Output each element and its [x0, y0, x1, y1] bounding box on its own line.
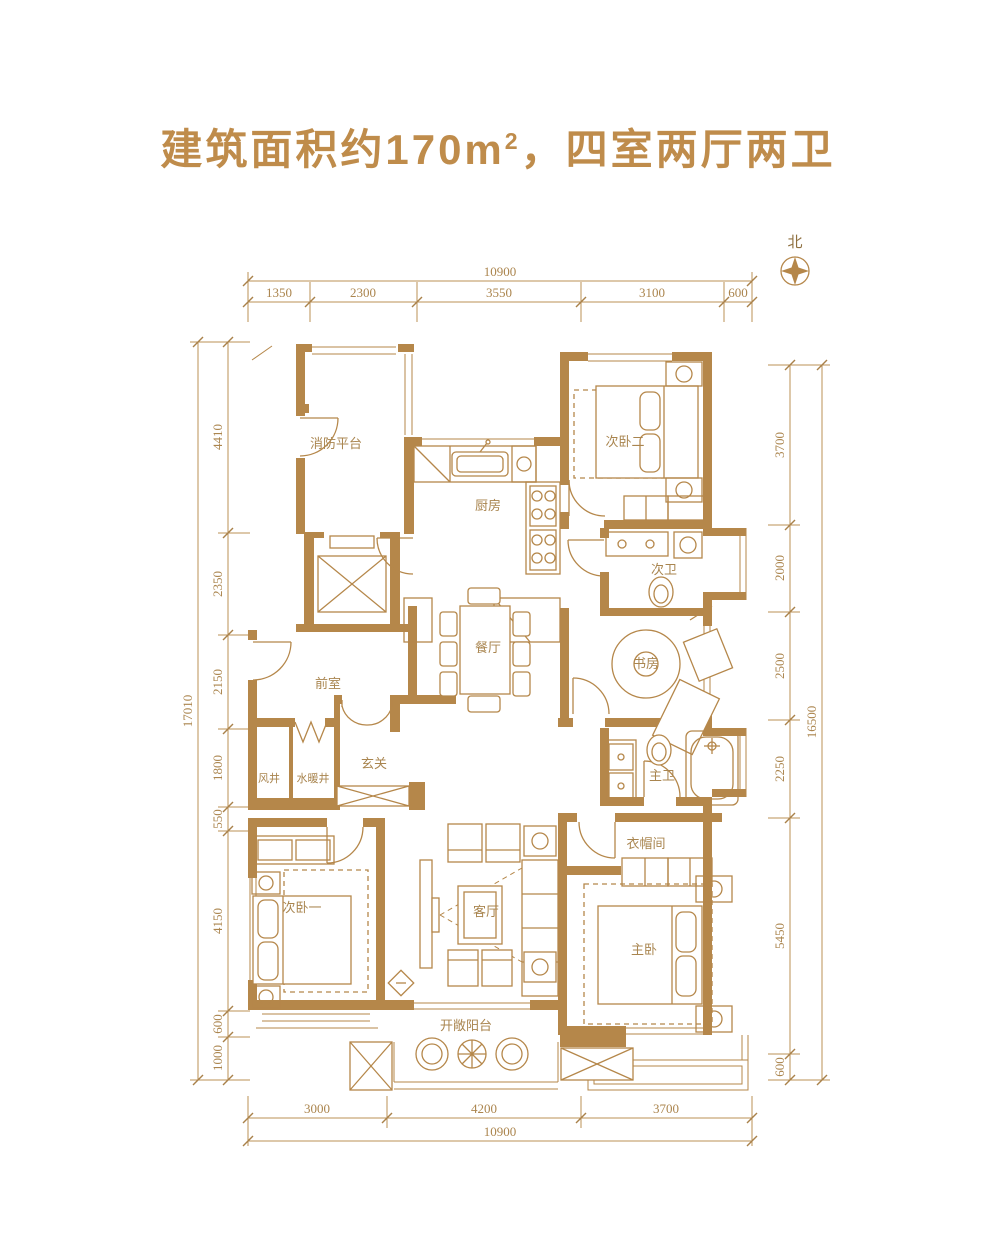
dim-right-5: 5450 [772, 923, 787, 949]
dim-top-5: 600 [728, 285, 748, 300]
dim-left-3: 2150 [210, 669, 225, 695]
label-living: 客厅 [473, 904, 499, 919]
north-label: 北 [787, 234, 802, 251]
dim-top-1: 1350 [266, 285, 292, 300]
label-bedroom2: 次卧二 [605, 434, 644, 449]
foyer-cabinet [337, 786, 409, 806]
dim-left-5: 550 [210, 809, 225, 829]
label-study: 书房 [633, 656, 659, 671]
dim-bottom-total: 10900 [484, 1124, 517, 1139]
label-master-bath: 主卫 [649, 768, 675, 783]
dim-top-2: 2300 [350, 285, 376, 300]
dim-left-total: 17010 [180, 695, 195, 728]
dim-left-4: 1800 [210, 755, 225, 781]
dim-left-8: 1000 [210, 1045, 225, 1071]
label-plumbing-shaft: 水暖井 [297, 771, 330, 785]
dim-bottom-1: 3000 [304, 1101, 330, 1116]
dim-right-2: 2000 [772, 555, 787, 581]
label-balcony: 开敞阳台 [440, 1018, 492, 1033]
label-kitchen: 厨房 [475, 498, 501, 513]
dim-bottom-3: 3700 [653, 1101, 679, 1116]
elevator [318, 536, 386, 612]
dim-left-7: 600 [210, 1014, 225, 1034]
north-indicator: 北 [781, 234, 809, 285]
dim-top-4: 3100 [639, 285, 665, 300]
dim-right-1: 3700 [772, 432, 787, 458]
label-dining: 餐厅 [475, 640, 501, 655]
dim-right-total: 16500 [804, 706, 819, 739]
dim-right-6: 600 [772, 1057, 787, 1077]
label-master-bedroom: 主卧 [631, 942, 657, 957]
dim-right-4: 2250 [772, 756, 787, 782]
dim-top-3: 3550 [486, 285, 512, 300]
floorplan-drawing: 北 10900 1350 2300 3550 3100 600 [0, 0, 996, 1248]
label-cloakroom: 衣帽间 [626, 836, 665, 851]
dim-bottom-2: 4200 [471, 1101, 497, 1116]
dim-left-2: 2350 [210, 571, 225, 597]
dim-right-3: 2500 [772, 653, 787, 679]
dim-left-6: 4150 [210, 908, 225, 934]
floorplan-page: 建筑面积约170m2，四室两厅两卫 北 10900 1350 2300 3550… [0, 0, 996, 1248]
label-bath2: 次卫 [651, 562, 677, 577]
label-front-room: 前室 [315, 676, 341, 691]
bedroom1-furniture [252, 836, 368, 1008]
label-air-shaft: 风井 [258, 771, 280, 785]
dim-top-total: 10900 [484, 264, 517, 279]
label-foyer: 玄关 [361, 756, 387, 771]
dim-left-1: 4410 [210, 424, 225, 450]
label-fire-platform: 消防平台 [310, 436, 362, 451]
cloakroom-wardrobe [622, 858, 712, 886]
label-bedroom1: 次卧一 [282, 900, 321, 915]
